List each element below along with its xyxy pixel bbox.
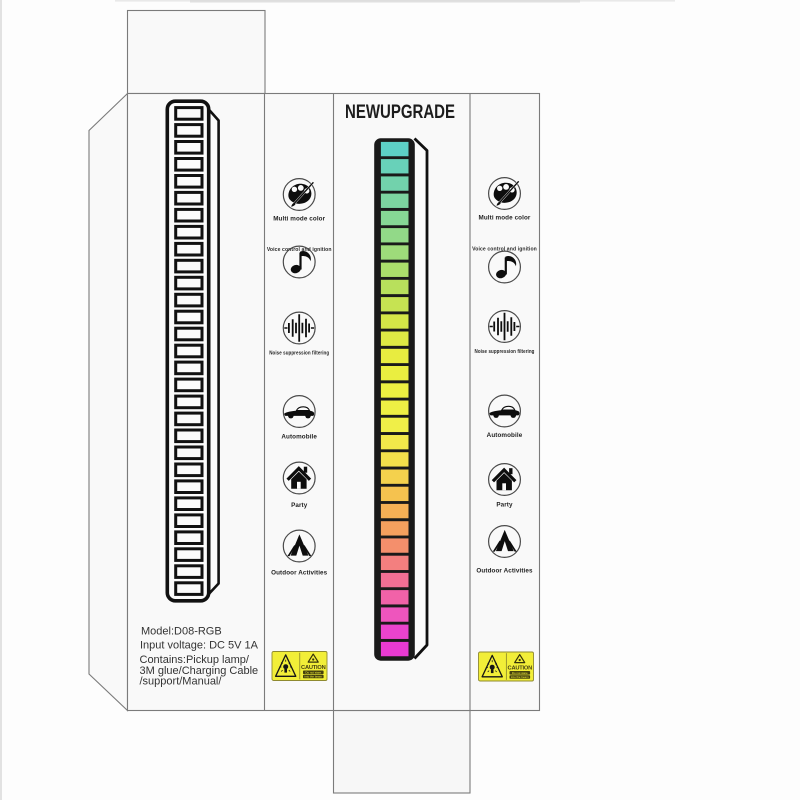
svg-text:Voice control and ignition: Voice control and ignition	[267, 247, 332, 253]
svg-text:Noise suppression filtering: Noise suppression filtering	[269, 351, 329, 357]
svg-text:Automobile: Automobile	[487, 432, 523, 439]
svg-text:Model:D08-RGB: Model:D08-RGB	[141, 626, 222, 638]
svg-text:Outdoor Activities: Outdoor Activities	[271, 570, 328, 577]
svg-text:into the beam: into the beam	[305, 675, 323, 679]
svg-text:Party: Party	[291, 502, 308, 509]
svg-text:/support/Manual/: /support/Manual/	[140, 676, 223, 688]
svg-text:Input voltage: DC 5V 1A: Input voltage: DC 5V 1A	[140, 640, 259, 652]
svg-text:Multi mode color: Multi mode color	[479, 215, 531, 222]
svg-text:Automobile: Automobile	[281, 434, 317, 441]
svg-text:Noise suppression filtering: Noise suppression filtering	[475, 349, 535, 355]
svg-text:NEWUPGRADE: NEWUPGRADE	[345, 101, 455, 123]
svg-text:Outdoor Activities: Outdoor Activities	[476, 568, 533, 575]
svg-text:into the beam: into the beam	[511, 675, 529, 679]
svg-text:Party: Party	[496, 502, 513, 509]
svg-text:Multi mode color: Multi mode color	[273, 216, 325, 223]
